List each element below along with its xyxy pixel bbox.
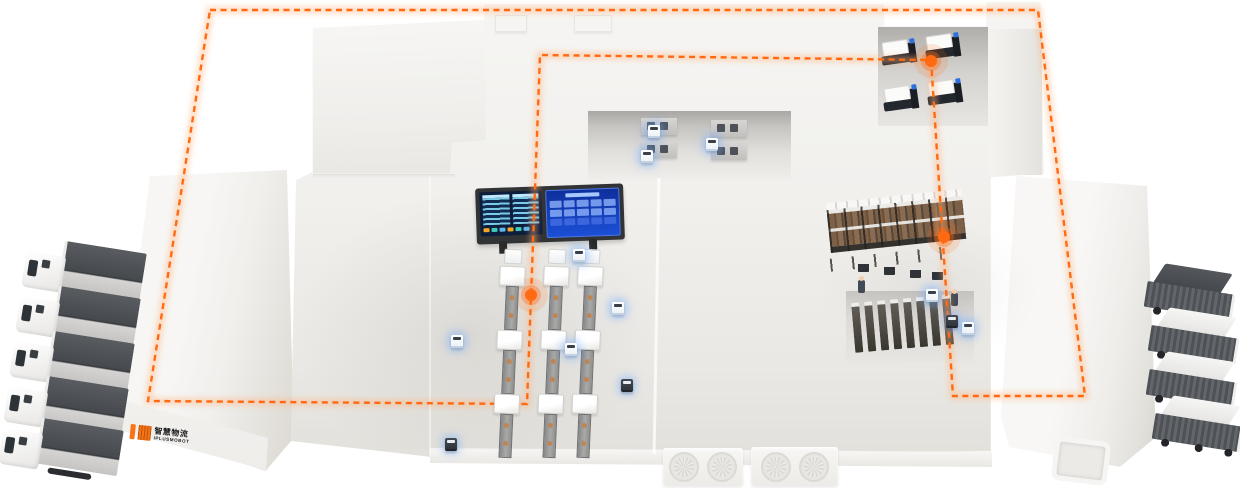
monitor-status-strip (483, 225, 539, 233)
monitor-table (512, 193, 540, 224)
conveyor-belt (501, 350, 516, 395)
brand-mark-icon (129, 424, 136, 439)
sorter-head (548, 249, 567, 265)
amr-robot (565, 343, 577, 356)
roof-block (574, 15, 612, 32)
status-chip (499, 228, 505, 232)
test-machine (879, 35, 923, 70)
sorter-machine (540, 329, 567, 350)
floor-seam (429, 176, 431, 456)
monitor-dashboard-panel (545, 188, 621, 239)
right-dock-building (1001, 173, 1158, 469)
workstation (711, 120, 747, 137)
amr-robot (648, 125, 660, 138)
amr-robot (573, 249, 585, 262)
rack-shuttle (910, 268, 921, 278)
brand-mark-icon (137, 425, 151, 441)
monitor-tables (482, 193, 539, 225)
sorter-machine (499, 266, 526, 287)
rack-shuttle (932, 270, 943, 280)
conveyor-belt (545, 350, 560, 395)
fan-icon (669, 452, 699, 482)
amr-robot (926, 289, 938, 302)
amr-robot (641, 150, 653, 163)
sorter-machine (493, 393, 520, 414)
sorter-machine (571, 393, 598, 414)
status-chip (491, 228, 497, 232)
fan-vent-block (751, 447, 838, 486)
amr-robot (451, 335, 463, 348)
amr-robot (962, 322, 974, 335)
amr-robot-dark (445, 438, 457, 451)
amr-robot (706, 138, 718, 151)
top-equipment-bay (588, 111, 791, 180)
fan-icon (799, 452, 829, 482)
sorter-machine (574, 329, 601, 350)
sorter-machine (577, 266, 604, 287)
rack-shuttle (858, 262, 869, 272)
amr-robot (612, 302, 624, 315)
autonomous-truck (1150, 393, 1240, 461)
top-right-wall-pillar (988, 29, 1042, 175)
conveyor-belt (548, 286, 563, 331)
monitor-data-panel (479, 190, 542, 236)
monitor-kpi-grid (550, 199, 617, 226)
test-machine (925, 75, 969, 110)
sorter-machine (537, 393, 564, 414)
conveyor-belt (582, 286, 597, 331)
amr-robot-dark (621, 379, 633, 392)
rack-shuttle (884, 265, 895, 275)
status-chip (523, 227, 529, 231)
roof-block (495, 15, 527, 32)
test-machine (881, 81, 925, 116)
status-chip (483, 228, 489, 232)
sorter-head (504, 249, 523, 265)
fan-icon (707, 452, 737, 482)
conveyor-belt (579, 350, 594, 395)
test-machine (923, 29, 967, 64)
monitoring-screen (475, 183, 625, 244)
conveyor-belt (504, 286, 519, 331)
worker-figure (951, 293, 958, 306)
monitor-table (482, 194, 510, 225)
right-building-door-cutout (1051, 436, 1112, 486)
worker-figure (858, 280, 865, 293)
factory-scene: 智慧物流 IPLUSMOBOT (0, 0, 1240, 488)
fan-icon (761, 452, 791, 482)
sorter-machine (496, 329, 523, 350)
truck-cab (0, 428, 43, 470)
conveyor-belt (576, 414, 591, 459)
fan-vent-block (663, 448, 743, 486)
conveyor-belt (542, 414, 557, 459)
status-chip (507, 227, 513, 231)
amr-robot-dark (946, 315, 958, 328)
sorter-machine (543, 266, 570, 287)
conveyor-belt (498, 414, 513, 459)
status-chip (515, 227, 521, 231)
monitor-title-bar (565, 192, 599, 197)
roof-edge-shadow (313, 174, 455, 178)
